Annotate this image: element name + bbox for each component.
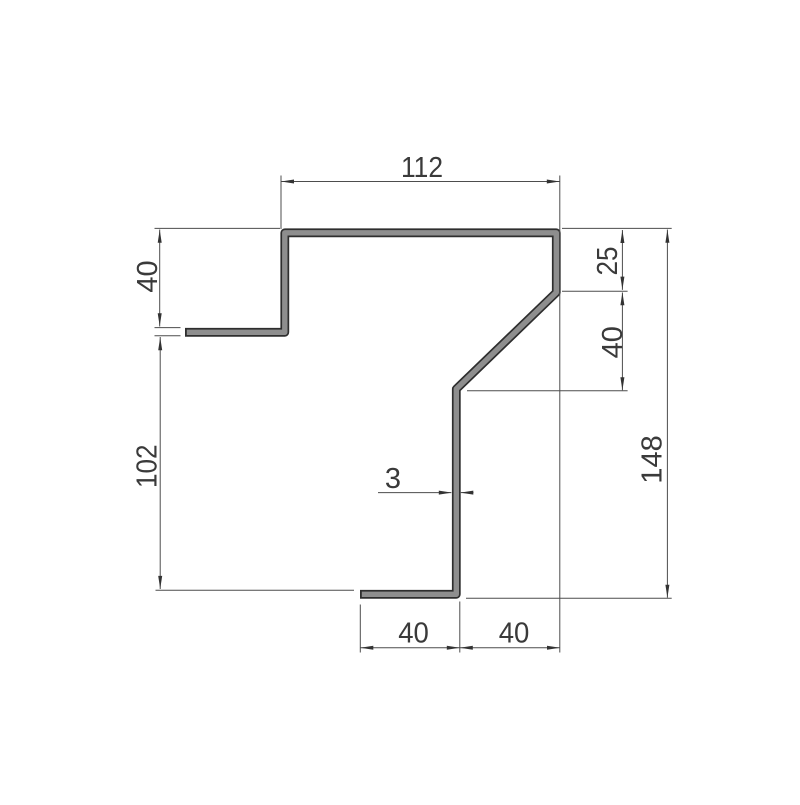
svg-text:102: 102 (130, 445, 163, 489)
svg-text:40: 40 (398, 616, 429, 649)
svg-text:40: 40 (132, 260, 164, 292)
svg-text:40: 40 (499, 616, 530, 649)
svg-text:40: 40 (597, 326, 629, 358)
svg-text:112: 112 (401, 151, 443, 183)
svg-text:148: 148 (637, 435, 669, 483)
svg-text:3: 3 (385, 463, 401, 495)
svg-text:25: 25 (591, 246, 624, 275)
